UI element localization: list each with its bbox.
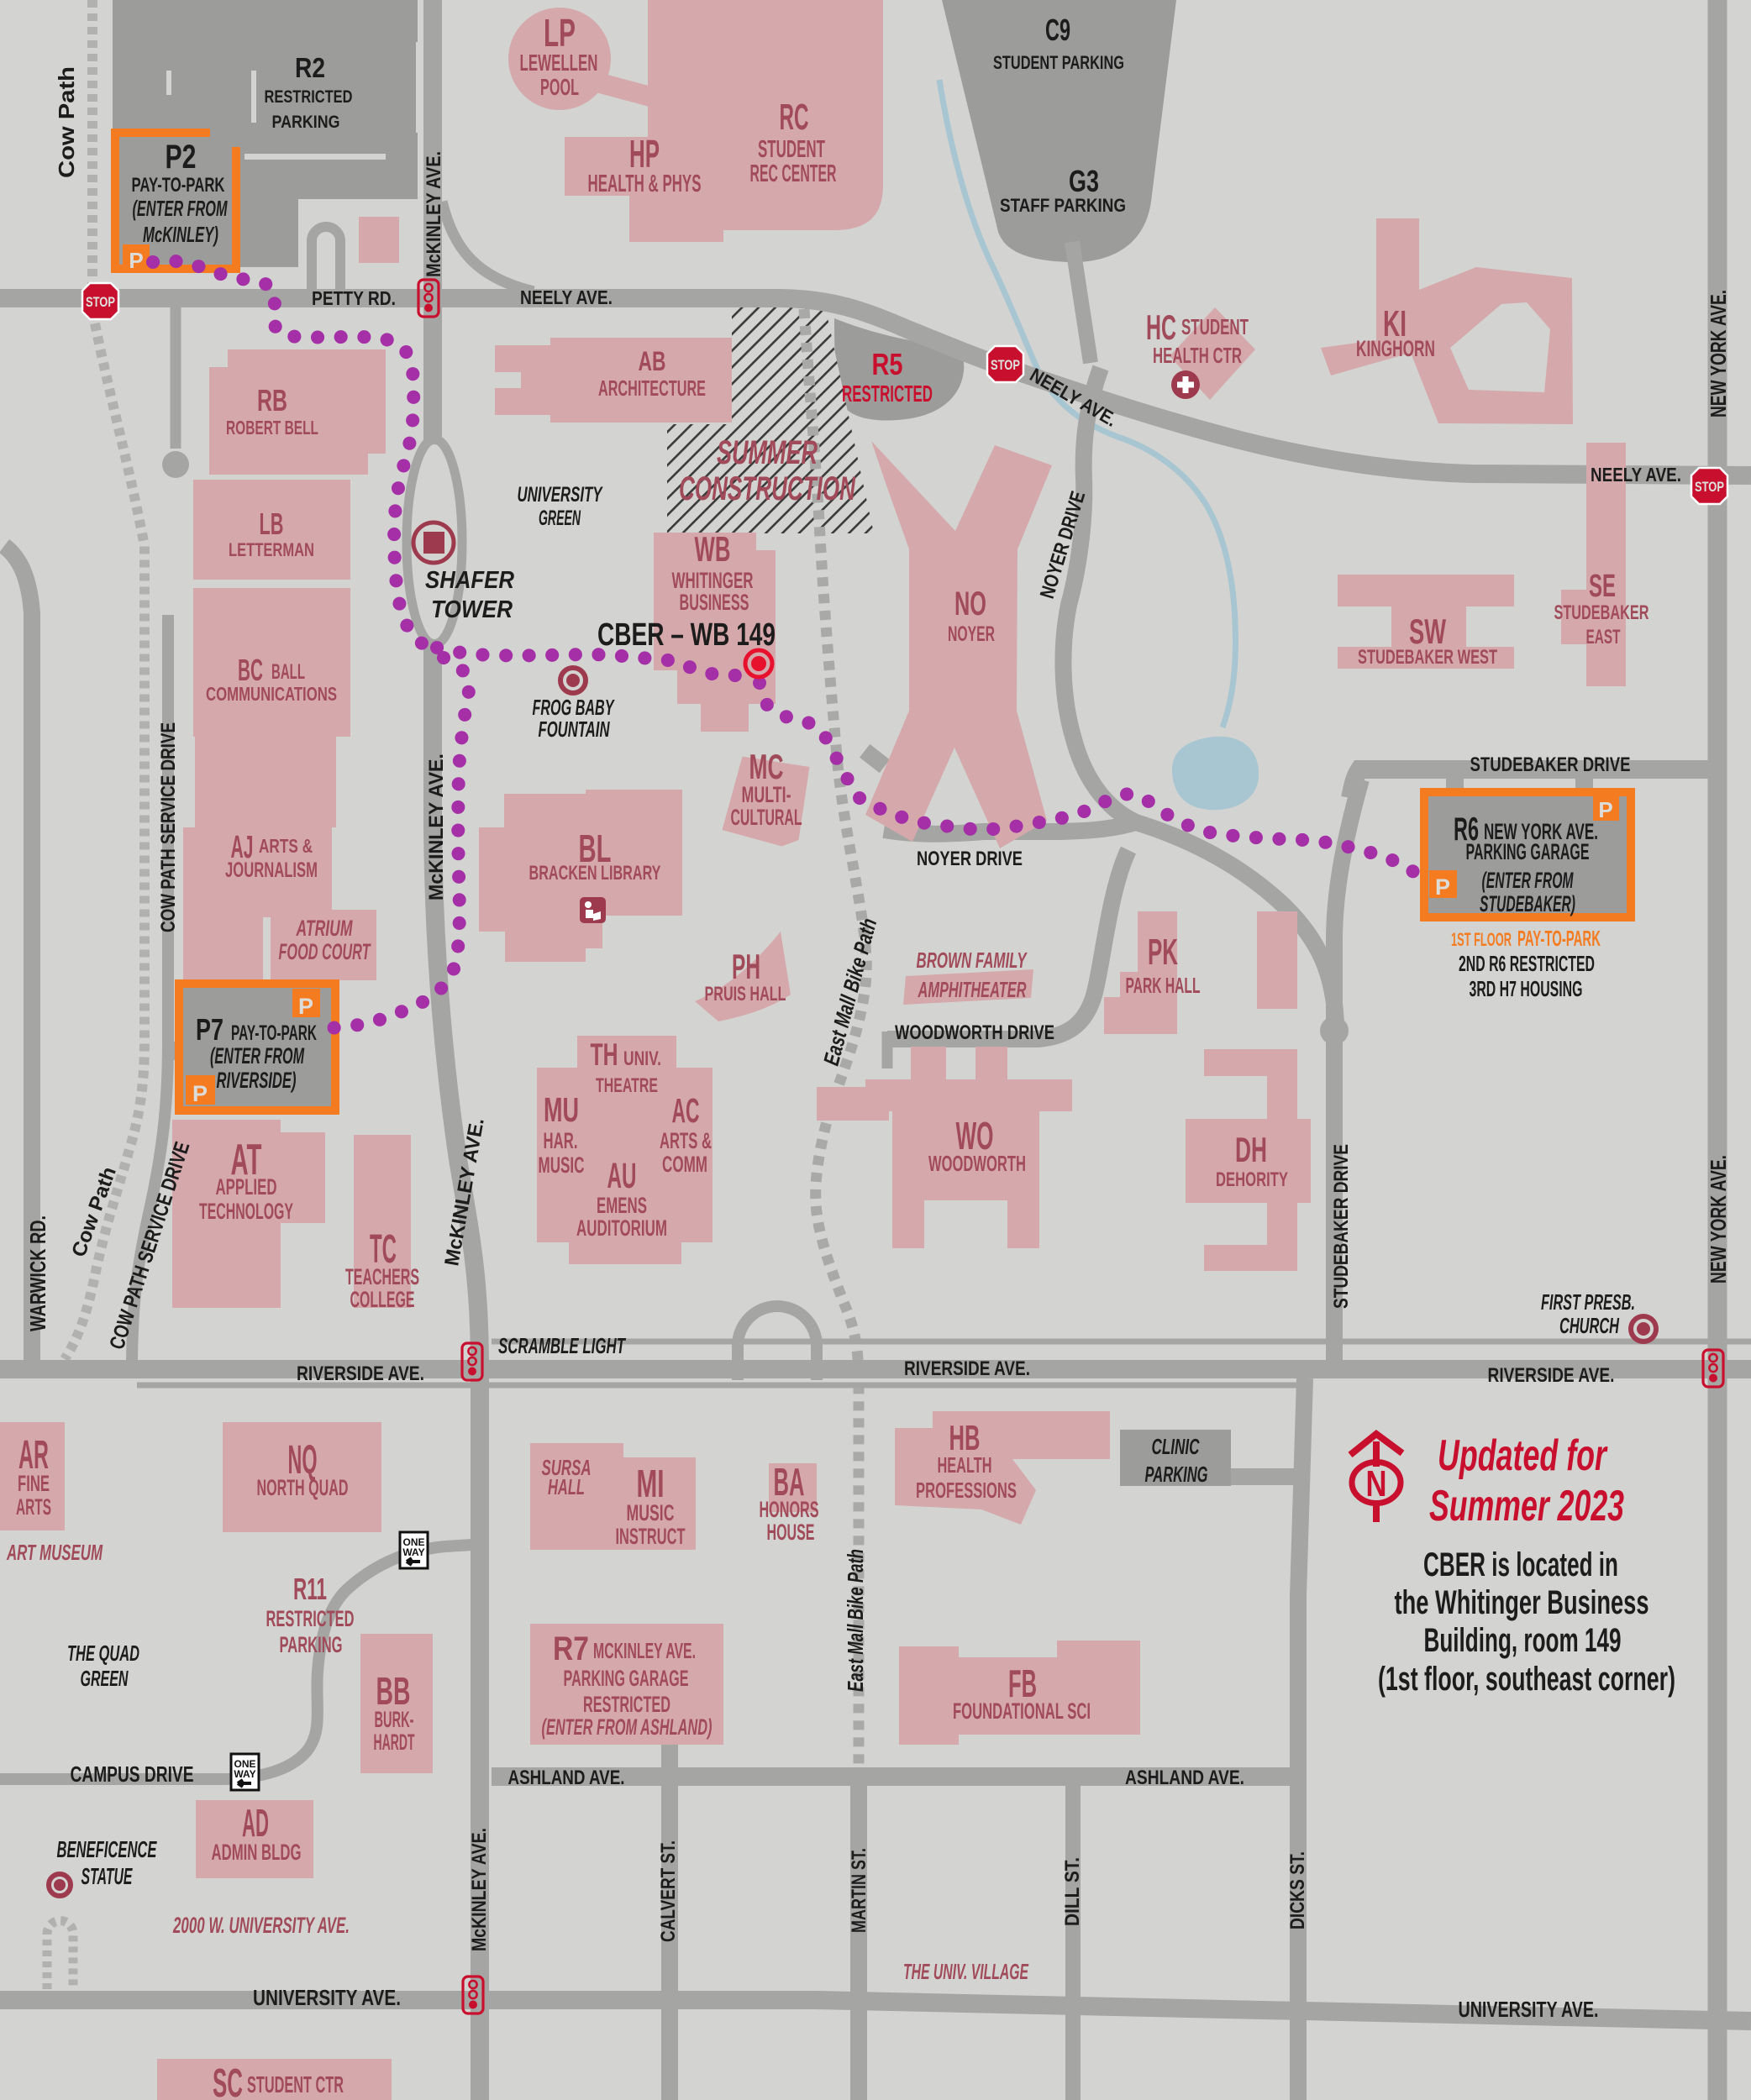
svg-text:PARKING GARAGE: PARKING GARAGE: [1466, 839, 1590, 864]
svg-text:STUDEBAKER: STUDEBAKER: [1554, 601, 1649, 624]
svg-text:MULTI-: MULTI-: [742, 782, 791, 807]
svg-text:1ST FLOOR: 1ST FLOOR: [1451, 929, 1512, 950]
svg-text:R11: R11: [293, 1572, 327, 1606]
svg-text:MCKINLEY AVE.: MCKINLEY AVE.: [593, 1638, 696, 1663]
svg-text:LP: LP: [544, 11, 576, 55]
svg-text:THEATRE: THEATRE: [596, 1074, 658, 1097]
svg-text:RB: RB: [257, 383, 287, 417]
svg-text:BENEFICENCE: BENEFICENCE: [57, 1836, 158, 1862]
svg-text:HALL: HALL: [548, 1474, 585, 1499]
svg-text:EMENS: EMENS: [597, 1193, 647, 1218]
svg-text:ATRIUM: ATRIUM: [296, 916, 353, 941]
svg-text:McKINLEY): McKINLEY): [143, 222, 218, 247]
svg-text:FINE: FINE: [18, 1471, 50, 1496]
svg-text:BALL: BALL: [271, 660, 305, 684]
svg-text:RESTRICTED: RESTRICTED: [265, 87, 353, 107]
svg-text:McKINLEY AVE.: McKINLEY AVE.: [468, 1828, 491, 1951]
svg-text:SE: SE: [1589, 569, 1616, 604]
svg-text:GREEN: GREEN: [539, 507, 581, 530]
svg-text:WOODWORTH DRIVE: WOODWORTH DRIVE: [895, 1021, 1054, 1044]
svg-text:AMPHITHEATER: AMPHITHEATER: [918, 977, 1027, 1002]
svg-text:PAY-TO-PARK: PAY-TO-PARK: [231, 1021, 317, 1045]
svg-text:R7: R7: [553, 1630, 589, 1667]
svg-text:STUDEBAKER): STUDEBAKER): [1480, 891, 1575, 916]
svg-text:(ENTER FROM: (ENTER FROM: [1482, 868, 1574, 893]
svg-text:P: P: [1598, 797, 1612, 822]
svg-text:PK: PK: [1148, 932, 1178, 973]
svg-text:STATUE: STATUE: [82, 1863, 134, 1889]
svg-text:(ENTER FROM ASHLAND): (ENTER FROM ASHLAND): [542, 1714, 712, 1740]
svg-text:RIVERSIDE AVE.: RIVERSIDE AVE.: [1488, 1364, 1615, 1387]
svg-text:HAR.: HAR.: [544, 1128, 578, 1153]
svg-text:PARK HALL: PARK HALL: [1126, 973, 1201, 998]
svg-text:McKINLEY AVE.: McKINLEY AVE.: [423, 151, 445, 277]
svg-text:RESTRICTED: RESTRICTED: [583, 1692, 670, 1717]
svg-text:R5: R5: [872, 347, 903, 381]
svg-text:BROWN FAMILY: BROWN FAMILY: [917, 948, 1028, 973]
svg-text:AU: AU: [607, 1156, 637, 1196]
svg-text:HEALTH & PHYS: HEALTH & PHYS: [588, 171, 702, 197]
svg-text:ARCHITECTURE: ARCHITECTURE: [598, 375, 706, 401]
svg-text:BRACKEN LIBRARY: BRACKEN LIBRARY: [529, 862, 661, 885]
svg-text:AB: AB: [639, 346, 666, 376]
svg-text:P: P: [298, 994, 313, 1019]
svg-text:R2: R2: [295, 52, 325, 83]
svg-text:PARKING: PARKING: [280, 1632, 343, 1657]
svg-text:STUDEBAKER DRIVE: STUDEBAKER DRIVE: [1330, 1144, 1353, 1309]
svg-text:WOODWORTH: WOODWORTH: [928, 1151, 1026, 1176]
svg-text:AC: AC: [672, 1091, 700, 1130]
svg-text:PETTY RD.: PETTY RD.: [312, 287, 396, 309]
svg-text:HEALTH: HEALTH: [938, 1452, 992, 1478]
svg-text:STUDEBAKER WEST: STUDEBAKER WEST: [1358, 646, 1497, 669]
svg-text:DILL ST.: DILL ST.: [1061, 1857, 1084, 1926]
svg-text:the Whitinger Business: the Whitinger Business: [1395, 1584, 1649, 1621]
svg-text:STOP: STOP: [1695, 479, 1724, 495]
svg-text:STUDENT PARKING: STUDENT PARKING: [993, 52, 1124, 73]
svg-text:MARTIN ST.: MARTIN ST.: [848, 1848, 870, 1933]
svg-text:PAY-TO-PARK: PAY-TO-PARK: [1517, 926, 1601, 951]
svg-text:STOP: STOP: [86, 294, 115, 310]
svg-text:HB: HB: [949, 1418, 981, 1457]
svg-text:SW: SW: [1409, 612, 1446, 651]
svg-text:BURK-: BURK-: [375, 1707, 414, 1732]
svg-text:MI: MI: [637, 1462, 665, 1505]
svg-text:MUSIC: MUSIC: [539, 1152, 585, 1178]
svg-text:P: P: [129, 248, 143, 273]
svg-text:COW PATH SERVICE DRIVE: COW PATH SERVICE DRIVE: [157, 722, 180, 932]
svg-text:TOWER: TOWER: [431, 596, 513, 623]
svg-text:3RD H7 HOUSING: 3RD H7 HOUSING: [1470, 976, 1583, 1001]
svg-text:UNIVERSITY AVE.: UNIVERSITY AVE.: [253, 1985, 401, 2010]
svg-text:NEW YORK AVE.: NEW YORK AVE.: [1706, 1155, 1731, 1284]
svg-text:RESTRICTED: RESTRICTED: [266, 1606, 355, 1631]
svg-text:STAFF PARKING: STAFF PARKING: [1000, 195, 1126, 216]
svg-text:PRUIS HALL: PRUIS HALL: [705, 983, 786, 1005]
svg-text:FOOD COURT: FOOD COURT: [279, 939, 372, 964]
svg-text:PH: PH: [732, 947, 760, 986]
svg-text:FOUNDATIONAL SCI: FOUNDATIONAL SCI: [953, 1698, 1091, 1724]
svg-text:SCRAMBLE LIGHT: SCRAMBLE LIGHT: [498, 1333, 626, 1358]
svg-text:WAY: WAY: [234, 1768, 255, 1780]
svg-text:CLINIC: CLINIC: [1152, 1434, 1201, 1459]
svg-text:FIRST PRESB.: FIRST PRESB.: [1541, 1289, 1635, 1315]
svg-text:HARDT: HARDT: [374, 1730, 415, 1755]
svg-text:C9: C9: [1045, 13, 1070, 47]
svg-text:COLLEGE: COLLEGE: [350, 1287, 415, 1312]
svg-text:N: N: [1366, 1463, 1387, 1504]
svg-text:(ENTER FROM: (ENTER FROM: [133, 196, 229, 221]
svg-text:STOP: STOP: [991, 357, 1020, 373]
svg-text:BC: BC: [238, 653, 263, 687]
svg-text:RIVERSIDE AVE.: RIVERSIDE AVE.: [904, 1357, 1030, 1380]
svg-text:Building, room 149: Building, room 149: [1424, 1622, 1622, 1659]
svg-text:STUDENT: STUDENT: [1181, 314, 1249, 339]
svg-text:REC CENTER: REC CENTER: [750, 160, 837, 187]
svg-text:PROFESSIONS: PROFESSIONS: [916, 1478, 1017, 1503]
svg-text:ASHLAND AVE.: ASHLAND AVE.: [1125, 1767, 1244, 1789]
svg-text:ARTS: ARTS: [16, 1494, 51, 1520]
svg-text:P: P: [1435, 874, 1450, 900]
svg-text:McKINLEY AVE.: McKINLEY AVE.: [425, 753, 448, 900]
svg-text:NEELY AVE.: NEELY AVE.: [520, 286, 613, 308]
svg-text:ADMIN BLDG: ADMIN BLDG: [212, 1840, 302, 1865]
svg-text:GREEN: GREEN: [81, 1666, 129, 1691]
svg-text:Cow Path: Cow Path: [54, 66, 79, 178]
svg-text:CHURCH: CHURCH: [1559, 1313, 1620, 1338]
svg-text:SHAFER: SHAFER: [425, 567, 514, 594]
svg-text:(1st floor, southeast corner): (1st floor, southeast corner): [1378, 1661, 1675, 1698]
svg-text:RIVERSIDE AVE.: RIVERSIDE AVE.: [297, 1362, 424, 1385]
svg-text:NO: NO: [954, 585, 986, 622]
svg-text:NOYER: NOYER: [948, 622, 995, 646]
svg-text:MU: MU: [544, 1090, 579, 1129]
svg-text:RIVERSIDE): RIVERSIDE): [217, 1068, 297, 1093]
svg-text:JOURNALISM: JOURNALISM: [225, 858, 318, 882]
svg-text:CONSTRUCTION: CONSTRUCTION: [679, 470, 856, 507]
svg-text:RESTRICTED: RESTRICTED: [842, 381, 933, 407]
svg-text:THE UNIV. VILLAGE: THE UNIV. VILLAGE: [903, 1959, 1028, 1984]
svg-text:UNIVERSITY AVE.: UNIVERSITY AVE.: [1459, 1997, 1599, 2022]
svg-text:NEELY AVE.: NEELY AVE.: [1591, 464, 1681, 486]
svg-text:CALVERT ST.: CALVERT ST.: [657, 1840, 680, 1942]
svg-text:HC: HC: [1146, 307, 1176, 347]
svg-text:PARKING: PARKING: [272, 113, 340, 132]
svg-text:COMM: COMM: [662, 1152, 707, 1177]
svg-text:ARTS &: ARTS &: [660, 1128, 712, 1153]
svg-text:P2: P2: [166, 139, 197, 176]
svg-text:ROBERT BELL: ROBERT BELL: [226, 417, 318, 438]
svg-text:LB: LB: [260, 507, 284, 541]
svg-text:G3: G3: [1069, 164, 1099, 198]
svg-text:WB: WB: [695, 529, 731, 569]
svg-text:CBER is located in: CBER is located in: [1423, 1546, 1618, 1583]
svg-text:ART MUSEUM: ART MUSEUM: [6, 1540, 103, 1565]
svg-text:INSTRUCT: INSTRUCT: [616, 1524, 686, 1549]
svg-text:STUDENT: STUDENT: [758, 136, 825, 163]
svg-text:AD: AD: [242, 1801, 269, 1845]
svg-text:PAY-TO-PARK: PAY-TO-PARK: [132, 174, 225, 197]
svg-text:AUDITORIUM: AUDITORIUM: [576, 1215, 667, 1241]
svg-text:RC: RC: [780, 97, 809, 138]
svg-text:ARTS &: ARTS &: [259, 835, 313, 857]
svg-text:DICKS ST.: DICKS ST.: [1286, 1851, 1309, 1929]
svg-text:PARKING: PARKING: [1145, 1462, 1208, 1487]
svg-text:APPLIED: APPLIED: [216, 1174, 277, 1200]
svg-text:(ENTER FROM: (ENTER FROM: [210, 1043, 304, 1068]
svg-text:SUMMER: SUMMER: [717, 434, 818, 471]
svg-text:CBER – WB 149: CBER – WB 149: [597, 617, 776, 653]
svg-text:HP: HP: [629, 132, 660, 176]
svg-text:HONORS: HONORS: [760, 1497, 819, 1522]
svg-text:POOL: POOL: [540, 74, 579, 100]
svg-text:MC: MC: [749, 747, 784, 786]
svg-text:MUSIC: MUSIC: [627, 1500, 675, 1525]
svg-text:LETTERMAN: LETTERMAN: [229, 539, 314, 560]
svg-text:FOUNTAIN: FOUNTAIN: [539, 717, 611, 742]
svg-text:EAST: EAST: [1586, 626, 1621, 648]
svg-text:STUDEBAKER DRIVE: STUDEBAKER DRIVE: [1470, 753, 1631, 776]
svg-text:WAY: WAY: [402, 1546, 424, 1558]
svg-text:HOUSE: HOUSE: [767, 1520, 815, 1545]
svg-text:UNIVERSITY: UNIVERSITY: [518, 483, 604, 507]
svg-text:TECHNOLOGY: TECHNOLOGY: [199, 1199, 293, 1224]
svg-text:DH: DH: [1235, 1130, 1267, 1169]
svg-text:NORTH QUAD: NORTH QUAD: [257, 1475, 349, 1500]
svg-text:P7: P7: [196, 1012, 223, 1047]
svg-text:East Mall Bike Path: East Mall Bike Path: [843, 1549, 868, 1692]
svg-text:THE QUAD: THE QUAD: [67, 1641, 139, 1666]
svg-text:STUDENT CTR: STUDENT CTR: [247, 2071, 344, 2097]
svg-text:UNIV.: UNIV.: [623, 1047, 661, 1070]
svg-text:NEW YORK AVE.: NEW YORK AVE.: [1706, 290, 1731, 417]
svg-text:COMMUNICATIONS: COMMUNICATIONS: [206, 683, 337, 705]
svg-text:LEWELLEN: LEWELLEN: [520, 50, 598, 76]
svg-text:TEACHERS: TEACHERS: [345, 1264, 419, 1289]
svg-text:ASHLAND AVE.: ASHLAND AVE.: [508, 1767, 625, 1789]
svg-text:CAMPUS DRIVE: CAMPUS DRIVE: [71, 1761, 194, 1787]
svg-text:HEALTH CTR: HEALTH CTR: [1153, 343, 1242, 368]
svg-text:DEHORITY: DEHORITY: [1216, 1168, 1288, 1191]
svg-text:Updated for: Updated for: [1438, 1431, 1608, 1480]
svg-text:P: P: [192, 1081, 208, 1106]
svg-text:PARKING GARAGE: PARKING GARAGE: [564, 1666, 689, 1691]
svg-text:KINGHORN: KINGHORN: [1356, 336, 1435, 361]
svg-text:WARWICK RD.: WARWICK RD.: [25, 1215, 50, 1331]
svg-text:SC: SC: [213, 2061, 243, 2100]
svg-text:BUSINESS: BUSINESS: [680, 590, 749, 615]
svg-text:TH: TH: [591, 1037, 618, 1072]
svg-text:2ND R6 RESTRICTED: 2ND R6 RESTRICTED: [1459, 951, 1595, 976]
svg-text:CULTURAL: CULTURAL: [731, 805, 802, 830]
svg-text:NOYER DRIVE: NOYER DRIVE: [917, 848, 1023, 870]
svg-text:2000 W. UNIVERSITY AVE.: 2000 W. UNIVERSITY AVE.: [172, 1913, 350, 1938]
svg-text:Summer 2023: Summer 2023: [1429, 1482, 1624, 1530]
